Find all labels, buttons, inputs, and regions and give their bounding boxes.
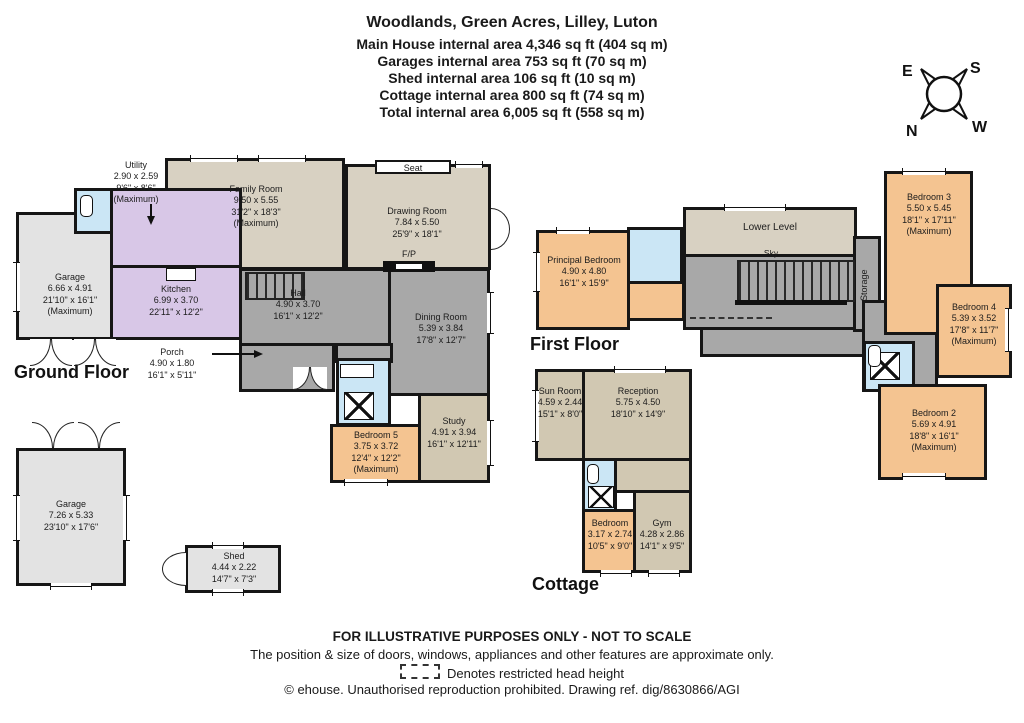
label-bedroom3: Bedroom 3 5.50 x 5.45 18'1" x 17'11" (Ma…	[888, 192, 970, 237]
garage2-door-arc	[99, 422, 120, 448]
label-bedroom4: Bedroom 4 5.39 x 3.52 17'8" x 11'7" (Max…	[933, 302, 1015, 347]
label-dining-room: Dining Room 5.39 x 3.84 17'8" x 12'7"	[396, 312, 486, 346]
footer-line2-wrap: The position & size of doors, windows, a…	[0, 647, 1024, 662]
room-cottage-hallway	[614, 458, 692, 493]
label-study: Study 4.91 x 3.94 16'1" x 12'11"	[420, 416, 488, 450]
garage2-door-arc	[32, 422, 53, 448]
label-bedroom5: Bedroom 5 3.75 x 3.72 12'4" x 12'2" (Max…	[333, 430, 419, 475]
compass-n: N	[906, 123, 918, 140]
compass-e: E	[902, 63, 913, 80]
room-bathroom-first-1	[627, 227, 683, 284]
label-bedroom2: Bedroom 2 5.69 x 4.91 18'8" x 16'1" (Max…	[890, 408, 978, 453]
window	[212, 589, 244, 596]
label-storage: Storage	[859, 246, 873, 324]
shower-cottage-icon	[588, 486, 614, 508]
window	[648, 570, 680, 577]
window	[487, 420, 494, 466]
garage2-door-arc	[78, 422, 99, 448]
bath-tub-ground	[340, 364, 374, 378]
kitchen-hob	[166, 268, 196, 281]
toilet-cottage-icon	[587, 464, 599, 484]
stairs-rail	[735, 300, 847, 305]
label-garage-attached: Garage 6.66 x 4.91 21'10" x 16'1" (Maxim…	[28, 272, 112, 317]
compass-w: W	[972, 119, 988, 136]
first-floor-label: First Floor	[530, 334, 619, 355]
label-shed: Shed 4.44 x 2.22 14'7" x 7'3"	[199, 551, 269, 585]
window	[13, 495, 20, 541]
french-door-arc	[491, 208, 510, 229]
window	[190, 155, 238, 162]
area-line-garages: Garages internal area 753 sq ft (70 sq m…	[0, 53, 1024, 70]
fireplace-inner	[395, 263, 423, 270]
porch-arrow	[212, 353, 256, 355]
window	[533, 252, 540, 292]
label-sky: Sky	[748, 248, 794, 259]
footer-line4-wrap: © ehouse. Unauthorised reproduction proh…	[0, 682, 1024, 697]
window	[487, 292, 494, 334]
footer-line3-wrap: Denotes restricted head height	[0, 664, 1024, 681]
label-garage-detached: Garage 7.26 x 5.33 23'10" x 17'6"	[28, 499, 114, 533]
utility-arrowhead	[147, 216, 155, 225]
french-door-arc	[491, 229, 510, 250]
footer-approximate-note: The position & size of doors, windows, a…	[0, 647, 1024, 662]
footer-copyright: © ehouse. Unauthorised reproduction proh…	[0, 682, 1024, 697]
shed-door-arc	[162, 569, 186, 586]
label-lower-level: Lower Level	[732, 222, 808, 235]
label-hall: Hall 4.90 x 3.70 16'1" x 12'2"	[250, 288, 346, 322]
area-line-total: Total internal area 6,005 sq ft (558 sq …	[0, 104, 1024, 121]
shed-door-arc	[162, 552, 186, 569]
footer-head-height-note: Denotes restricted head height	[447, 666, 624, 681]
shower-ground-icon	[344, 392, 374, 420]
label-gym: Gym 4.28 x 2.86 14'1" x 9'5"	[631, 518, 693, 552]
ground-floor-label: Ground Floor	[14, 362, 129, 383]
toilet-first-icon	[868, 345, 881, 367]
header: Woodlands, Green Acres, Lilley, Luton Ma…	[0, 14, 1024, 121]
compass-icon: E S N W	[888, 40, 1000, 148]
window	[556, 227, 590, 234]
area-line-shed: Shed internal area 106 sq ft (10 sq m)	[0, 70, 1024, 87]
window	[50, 583, 92, 590]
compass-s: S	[970, 60, 981, 77]
label-seat: Seat	[380, 163, 446, 174]
label-utility: Utility 2.90 x 2.59 9'6" x 8'6" (Maximum…	[94, 160, 178, 205]
window	[13, 262, 20, 312]
area-line-cottage: Cottage internal area 800 sq ft (74 sq m…	[0, 87, 1024, 104]
window	[258, 155, 306, 162]
label-porch: Porch 4.90 x 1.80 16'1" x 5'11"	[128, 347, 216, 381]
label-kitchen: Kitchen 6.99 x 3.70 22'11" x 12'2"	[128, 284, 224, 318]
label-sun-room: Sun Room 4.59 x 2.44 15'1" x 8'0"	[531, 386, 589, 420]
area-line-main-house: Main House internal area 4,346 sq ft (40…	[0, 36, 1024, 53]
label-reception: Reception 5.75 x 4.50 18'10" x 14'9"	[592, 386, 684, 420]
porch-arrowhead	[254, 350, 263, 358]
window	[600, 570, 632, 577]
footer: FOR ILLUSTRATIVE PURPOSES ONLY - NOT TO …	[0, 629, 1024, 644]
room-first-corridor	[700, 327, 872, 357]
toilet-icon	[80, 195, 93, 217]
label-principal-bedroom: Principal Bedroom 4.90 x 4.80 16'1" x 15…	[543, 255, 625, 289]
window	[123, 495, 130, 541]
window	[455, 161, 483, 168]
footer-disclaimer: FOR ILLUSTRATIVE PURPOSES ONLY - NOT TO …	[0, 629, 1024, 644]
window	[212, 542, 244, 549]
label-fp: F/P	[388, 249, 430, 260]
utility-arrow	[150, 204, 152, 216]
first-floor-stairs	[737, 260, 855, 302]
restricted-head-height-line	[690, 317, 772, 319]
garage2-door-arc	[53, 422, 74, 448]
label-family-room: Family Room 9.50 x 5.55 31'2" x 18'3" (M…	[200, 184, 312, 229]
window	[724, 204, 786, 211]
label-drawing-room: Drawing Room 7.84 x 5.50 25'9" x 18'1"	[358, 206, 476, 240]
room-first-landing	[627, 281, 685, 321]
floorplan-canvas: Woodlands, Green Acres, Lilley, Luton Ma…	[0, 0, 1024, 723]
cottage-label: Cottage	[532, 574, 599, 595]
window	[902, 473, 946, 480]
restricted-head-height-icon	[400, 664, 440, 679]
window	[614, 366, 666, 373]
window	[344, 479, 388, 486]
window	[902, 168, 946, 175]
page-title: Woodlands, Green Acres, Lilley, Luton	[0, 14, 1024, 32]
